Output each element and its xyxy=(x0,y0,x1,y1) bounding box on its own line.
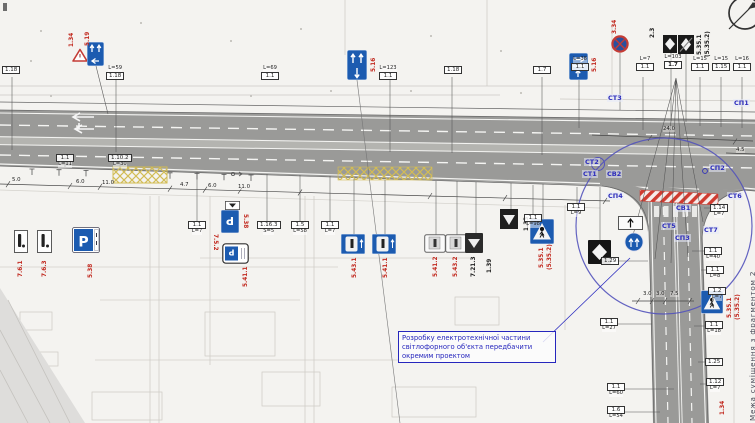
marking-length-label: L=40 xyxy=(706,255,720,261)
structure-marker-label: СП1 xyxy=(734,99,749,107)
marking-label-box: L=15 1.15 xyxy=(712,57,730,71)
structure-marker-label: СП2 xyxy=(710,164,725,172)
structure-marker: СП1 xyxy=(733,99,750,107)
priority-diamond-sign-2 xyxy=(678,35,694,54)
marking-length-label: L=7 xyxy=(714,212,725,218)
structure-marker-label: СП4 xyxy=(608,192,623,200)
marking-length-label: L=7 xyxy=(192,229,203,235)
structure-marker: СТ5 xyxy=(661,222,677,230)
structure-marker-label: СТ7 xyxy=(704,226,718,234)
marking-label-box: 1.25 xyxy=(705,358,723,366)
marking-length-label: L=9 xyxy=(571,211,582,217)
sign-back-plate-2 xyxy=(445,234,467,253)
side-road xyxy=(648,186,709,423)
marking-length-label: L=60 xyxy=(609,391,623,397)
marking-label-box: 1.18 xyxy=(444,66,462,74)
sign-code-label: 5.41.1 xyxy=(243,266,249,287)
dimension-label: 6.0 xyxy=(208,183,217,189)
marking-code: 1.1 xyxy=(733,63,751,71)
dimension-label: 3.0 xyxy=(656,291,665,297)
marking-length-label: L=27 xyxy=(602,326,616,332)
marking-label-box: 1.1 L=8 xyxy=(706,266,724,280)
marking-code: 1.25 xyxy=(705,358,723,366)
structure-marker: СТ1 xyxy=(582,170,598,178)
dimension-label: 4.5 xyxy=(736,147,745,153)
marking-code: 1.7 xyxy=(664,61,682,69)
structure-marker-label: СТ2 xyxy=(585,158,599,166)
sign-code-label: 2.3 xyxy=(650,28,656,38)
marking-label-box: 1.1 L=18 xyxy=(705,321,723,335)
sign-code-label: 5.43.2 xyxy=(453,256,459,277)
north-arrow-compass xyxy=(729,0,755,29)
marking-length-label: S=5 xyxy=(263,229,274,235)
structure-marker-label: СТ5 xyxy=(662,222,676,230)
marking-label-box: 1.1 L=11 xyxy=(56,154,74,168)
dimension-label: 11.0 xyxy=(238,184,250,190)
marking-length-label: L=98 xyxy=(526,222,540,228)
marking-label-box: L=69 1.1 xyxy=(261,66,279,80)
structure-marker: СВ2 xyxy=(606,170,622,178)
marking-label-box: 1.1 L=98 xyxy=(524,214,542,228)
marking-code: 1.1 xyxy=(571,63,589,71)
warning-sign-1-33 xyxy=(500,209,518,229)
yellow-hatch-box xyxy=(113,167,167,183)
sign-code-label: 5.16 xyxy=(592,58,598,72)
framed-sign-reversed: Р xyxy=(222,243,249,264)
sign-code-label: 7.5.2 xyxy=(212,234,218,251)
marking-code: 1.29 xyxy=(601,257,619,265)
sign-code-label: 5.43.1 xyxy=(352,257,358,278)
marking-length-label: L=11 xyxy=(58,162,72,168)
dimension-label: 5.0 xyxy=(12,177,21,183)
marking-label-box: 1.7 xyxy=(533,66,551,74)
marking-length-label: L=18 xyxy=(707,329,721,335)
marking-length-label: L=7 xyxy=(712,295,723,301)
sign-code-label: 5.38 xyxy=(88,264,94,278)
sign-code-label: 5.19 xyxy=(85,32,91,46)
marking-label-box: L=16 1.1 xyxy=(733,57,751,71)
structure-marker: СТ6 xyxy=(727,192,743,200)
sign-code-label: 5.41.2 xyxy=(433,256,439,277)
bottom-left-embankment xyxy=(0,288,85,423)
marking-code: 1.18 xyxy=(444,66,462,74)
marking-label-box: 1.6 L=54 xyxy=(607,406,625,420)
marking-label-box: 1.1 L=7 xyxy=(188,221,206,235)
marking-length-label: L=54 xyxy=(609,414,623,420)
marking-code: 1.7 xyxy=(533,66,551,74)
marking-code: 1.15 xyxy=(712,63,730,71)
parking-sign-reversed: Р xyxy=(221,210,239,233)
sign-code-label: (5.35.2) xyxy=(735,294,741,320)
traffic-plan-drawing: Р Р Р СТ3СП1СТ2СТ1СВ2СП4СП2СТ6СВ1СТ5СП3С… xyxy=(0,0,755,423)
fragment-boundary-label: Межа суміщення з фрагментом 2 xyxy=(748,271,755,421)
structure-marker-label: СП3 xyxy=(675,234,690,242)
marking-length-label: L=30 xyxy=(113,162,127,168)
parking-letter: Р xyxy=(228,248,234,257)
marking-label-box: 1.1 L=60 xyxy=(607,383,625,397)
mand-direction-circle-sign xyxy=(624,232,644,252)
parking-sign: Р xyxy=(72,227,100,253)
sign-code-label: 1.34 xyxy=(720,401,726,415)
structure-marker-label: СТ3 xyxy=(608,94,622,102)
dark-triangle-sign xyxy=(465,233,483,253)
structure-marker: СВ1 xyxy=(675,204,691,212)
marking-label-box: 1.2 L=7 xyxy=(708,287,726,301)
marking-label-box: L=7 1.1 xyxy=(636,57,654,71)
structure-marker: СТ3 xyxy=(607,94,623,102)
sign-code-label: 3.34 xyxy=(612,20,618,34)
structure-marker: СТ7 xyxy=(703,226,719,234)
marking-length-label: L=7 xyxy=(710,386,721,392)
marking-label-box: 1.1 L=40 xyxy=(704,247,722,261)
sign-code-label: 5.35.1 xyxy=(539,247,545,268)
parking-letter: Р xyxy=(226,214,234,227)
marking-label-box: 1.5 L=58 xyxy=(291,221,309,235)
yellow-hatch-strip xyxy=(338,167,432,180)
marking-label-box: 1.18 xyxy=(2,66,20,74)
dimension-label: 3.0 xyxy=(643,291,652,297)
dimension-label: 24.0 xyxy=(663,126,675,132)
marking-label-box: L=123 1.1 xyxy=(379,66,397,80)
structure-marker-label: СВ2 xyxy=(607,170,621,178)
sign-code-label: 5.35.1 xyxy=(727,297,733,318)
marking-label-box: 1.12 L=7 xyxy=(706,378,724,392)
structure-marker: СП4 xyxy=(607,192,624,200)
sign-code-label: (5.35.2) xyxy=(547,244,553,270)
structure-marker: СП3 xyxy=(674,234,691,242)
parking-letter: Р xyxy=(78,235,88,251)
bus-lane-sign-1 xyxy=(341,234,365,254)
structure-marker-label: СТ6 xyxy=(728,192,742,200)
marking-code: 1.1 xyxy=(691,63,709,71)
direction-plate-small xyxy=(225,201,240,210)
no-stopping-sign xyxy=(611,35,629,53)
structure-marker-label: СТ1 xyxy=(583,170,597,178)
sign-back-plate-1 xyxy=(424,234,446,253)
dimension-label: 6.0 xyxy=(76,179,85,185)
sign-code-label: 1.34 xyxy=(69,33,75,47)
marking-code: 1.1 xyxy=(636,63,654,71)
sign-code-label: 1.39 xyxy=(487,259,493,273)
sign-code-label: 5.41.1 xyxy=(383,257,389,278)
marking-code: 1.1 xyxy=(379,72,397,80)
marking-label-box: 1.14 L=7 xyxy=(710,204,728,218)
warning-triangle-sign xyxy=(72,48,88,63)
lane-direction-sign-2 xyxy=(347,50,367,80)
bus-lane-sign-2 xyxy=(372,234,396,254)
parking-method-plate-1 xyxy=(14,230,28,253)
sign-code-label: (5.35.2) xyxy=(705,31,711,57)
sign-code-label: 7.21.3 xyxy=(471,256,477,277)
marking-label-box: L=103 1.7 xyxy=(664,55,682,69)
marking-label-box: 1.1 L=9 xyxy=(567,203,585,217)
sign-code-label: 7.6.3 xyxy=(42,260,48,277)
parking-method-plate-2 xyxy=(37,230,52,253)
sign-code-label: 5.35.1 xyxy=(697,34,703,55)
dimension-label: 11.0 xyxy=(102,180,114,186)
marking-label-box: 1.1 L=7 xyxy=(321,221,339,235)
structure-marker: СТ2 xyxy=(584,158,600,166)
callout-note: Розробку електротехнічної частини світло… xyxy=(398,331,556,363)
marking-length-label: L=8 xyxy=(710,274,721,280)
marking-label-box: 1.10.2 L=30 xyxy=(108,154,132,168)
structure-marker: СП2 xyxy=(709,164,726,172)
marking-label-box: L=15 1.1 xyxy=(691,57,709,71)
marking-label-box: L=59 1.18 xyxy=(106,66,124,80)
marking-code: 1.18 xyxy=(106,72,124,80)
marking-label-box: 1.29 xyxy=(601,257,619,265)
marking-code: 1.1 xyxy=(261,72,279,80)
marking-length-label: L=7 xyxy=(325,229,336,235)
sign-code-label: 5.16 xyxy=(371,58,377,72)
dimension-label: 7.5 xyxy=(670,291,679,297)
marking-label-box: 1.1 L=27 xyxy=(600,318,618,332)
marking-code: 1.18 xyxy=(2,66,20,74)
marking-label-box: 1.16.3 S=5 xyxy=(257,221,281,235)
priority-diamond-sign-1 xyxy=(663,35,677,53)
marking-label-box: L=38 1.1 xyxy=(571,57,589,71)
structure-marker-label: СВ1 xyxy=(676,204,690,212)
marking-length-label: L=58 xyxy=(293,229,307,235)
arrow-indicator-box xyxy=(618,216,643,230)
dimension-label: 4.7 xyxy=(180,182,189,188)
sign-code-label: 5.38 xyxy=(242,214,248,228)
sign-code-label: 7.6.1 xyxy=(18,260,24,277)
